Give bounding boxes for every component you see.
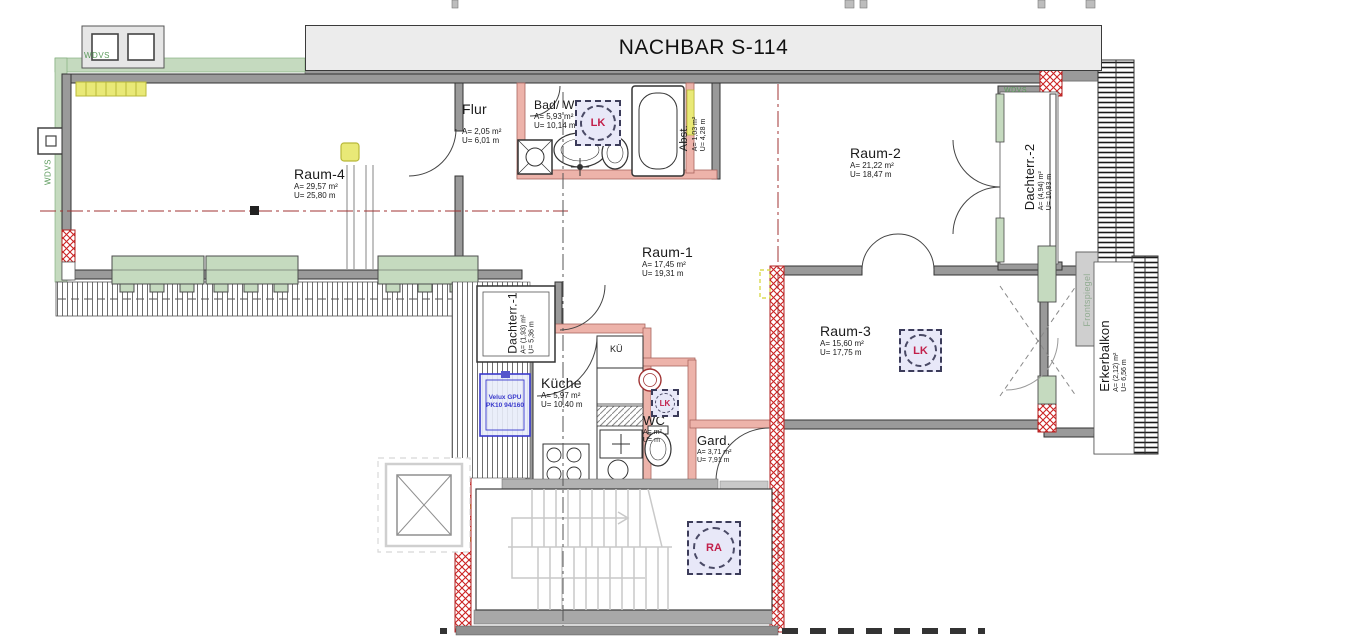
marker-lk-bad: LK [575,100,621,146]
room-label-raum-2: Raum-2 A= 21,22 m²U= 18,47 m [850,146,901,179]
elevator [378,458,470,552]
room-label-dachterr-2: Dachterr.-2 A= (4,94) m²U= 10,83 m [1023,144,1053,211]
wall-anchor [38,128,64,154]
neighbor-banner-text: NACHBAR S-114 [619,36,789,60]
bottom-walls [440,626,985,635]
beam-lines [347,165,373,270]
wdvs-label-top: WDVS [84,51,110,60]
lk-circle: LK [580,105,615,140]
room-label-raum-4: Raum-4 A= 29,57 m²U= 25,80 m [294,167,345,200]
room-label-gard: Gard. A= 3,71 m²U= 7,91 m [697,434,731,464]
marker-ra-stairwell: RA [687,521,741,575]
room-label-raum-1: Raum-1 A= 17,45 m²U= 19,31 m [642,245,693,278]
balcony-dormer-band [56,256,520,316]
floor-plan-page: NACHBAR S-114 Raum-4 A= 29,57 m²U= 25,80… [0,0,1346,637]
terrace-dachterr1 [452,282,555,478]
room-label-wc: WC A= m²U= m [643,414,665,444]
wdvs-label-left: WDVS [44,159,53,185]
room-label-dachterr-1: Dachterr.-1 A= (1,93) m²U= 5,36 m [507,292,536,354]
velux-window-label: Velux GPU PK10 94/160 [480,394,530,410]
lk-circle: LK [904,334,937,367]
room-label-abst: Abst. A= 1,03 m²U= 4,28 m [679,117,707,151]
marker-lk-wc: LK [651,389,679,417]
room-label-kueche: Küche A= 5,97 m²U= 10,40 m [541,376,583,409]
chimney [82,26,164,68]
floor-plan-drawing [0,0,1346,637]
neighbor-banner: NACHBAR S-114 [305,25,1102,71]
ra-circle: RA [693,527,735,569]
room-label-flur: Flur A= 2,05 m²U= 6,01 m [462,102,501,145]
marker-lk-raum-3: LK [899,329,942,372]
top-ticks [452,0,1095,8]
frontspiegel-label: Frontspiegel [1082,273,1092,326]
wdvs-label-right: WDVS [1004,87,1027,94]
room-label-raum-3: Raum-3 A= 15,60 m²U= 17,75 m [820,324,871,357]
ku-closet-label: KÜ [610,344,623,354]
lk-circle: LK [655,393,675,413]
room-label-erkerbalkon: Erkerbalkon A= (2,12) m²U= 6,56 m [1098,320,1128,392]
